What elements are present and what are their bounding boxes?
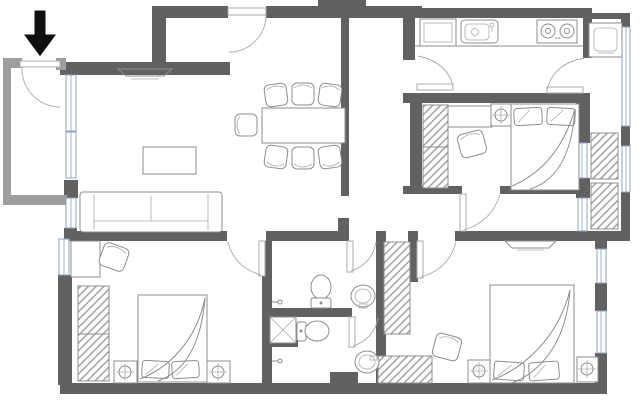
dining-chair [235,114,257,136]
bedroom3-window [597,311,606,353]
basin-icon [355,351,379,373]
living-left-window [66,198,76,228]
bedroom2-door [228,241,265,276]
hall-window [578,198,587,231]
pillow [172,360,200,378]
balcony-window [622,27,630,126]
entrance-arrow-icon [23,10,57,57]
porch-walls [3,58,67,205]
wardrobe [378,356,432,383]
bedroom1-door [460,194,500,231]
drying-rack [591,133,618,179]
dining-area [235,83,345,170]
wardrobe [384,242,410,334]
pillow [142,360,170,378]
shower-tray-icon [270,317,296,343]
fridge-icon [420,19,456,46]
sofa [80,192,222,232]
chair [98,241,131,272]
bedroom3-window [597,249,606,283]
balcony-window [622,146,630,192]
dining-chair [264,83,289,108]
tv-icon [505,241,556,250]
toilet-icon [297,321,329,341]
floor-plan [0,0,640,401]
basin-icon [351,285,375,308]
chair [456,129,487,159]
wc-door [347,241,376,272]
nightstand [114,361,137,383]
stove-icon [537,20,577,43]
nightstand [207,361,230,383]
dining-chair [292,83,314,105]
tap-icon [272,359,282,363]
dining-chair [292,147,314,169]
coffee-table [143,147,196,174]
tap-icon [272,300,282,304]
wardrobe [423,105,448,188]
kitchen [415,19,583,46]
double-bed [138,295,207,382]
service-balcony [589,23,622,229]
wc-upper [272,275,375,308]
living-left-window [66,132,76,178]
chair [431,332,462,362]
bedroom2-window [59,239,69,275]
double-bed [511,104,579,190]
nightstand [577,357,598,382]
washing-machine-icon [589,23,622,57]
toilet-icon [311,275,331,308]
kitchen-balcony-door [547,58,584,93]
dining-chair [318,83,343,108]
living-left-window [66,75,76,131]
pillow [514,107,543,125]
double-bed [490,285,574,383]
kitchen-door [417,56,453,90]
bathroom-door [349,317,378,347]
wardrobe [78,286,109,381]
entry-door [20,61,60,107]
nightstand [468,360,490,383]
nightstand [491,104,511,126]
dining-entry-door [228,8,266,52]
floor-plan-canvas [0,0,640,401]
desk [71,241,100,277]
bedroom-1 [423,104,579,190]
dining-chair [318,145,343,170]
drying-rack [591,183,618,229]
pillow [547,107,576,125]
kitchen-sink-icon [461,20,498,43]
bedroom-2 [71,241,230,383]
desk [448,106,492,127]
dining-table [262,108,345,143]
bedroom3-door [417,241,456,278]
dining-chair [264,145,289,170]
living-room [80,69,222,232]
